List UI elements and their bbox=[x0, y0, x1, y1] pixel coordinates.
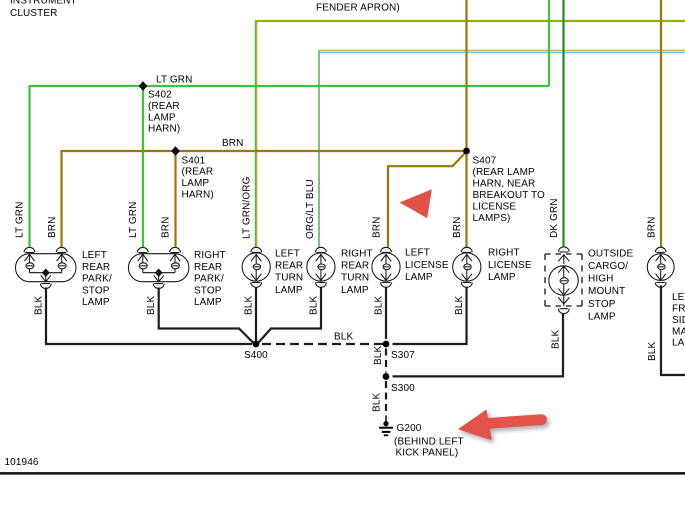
svg-text:RIGHT: RIGHT bbox=[194, 250, 226, 261]
svg-text:REAR: REAR bbox=[82, 262, 110, 273]
svg-text:LT GRN/ORG: LT GRN/ORG bbox=[242, 176, 253, 239]
svg-text:REAR: REAR bbox=[341, 261, 369, 272]
svg-text:LICENSE: LICENSE bbox=[488, 260, 532, 271]
svg-text:BLK: BLK bbox=[334, 332, 353, 343]
svg-text:LAMP: LAMP bbox=[148, 112, 176, 123]
svg-text:RIGHT: RIGHT bbox=[341, 249, 373, 260]
svg-text:LAMP: LAMP bbox=[182, 178, 210, 189]
svg-text:LAMP: LAMP bbox=[672, 338, 685, 349]
svg-text:BLK: BLK bbox=[34, 296, 45, 315]
svg-text:SIDE: SIDE bbox=[672, 315, 685, 326]
svg-text:S300: S300 bbox=[391, 383, 415, 394]
svg-text:PARK/: PARK/ bbox=[194, 274, 224, 285]
svg-text:HARN, NEAR: HARN, NEAR bbox=[473, 178, 536, 189]
svg-text:BLK: BLK bbox=[647, 342, 658, 361]
svg-text:LAMP: LAMP bbox=[82, 297, 110, 308]
svg-text:OUTSIDE: OUTSIDE bbox=[588, 248, 633, 259]
svg-text:(REAR LAMP: (REAR LAMP bbox=[473, 167, 536, 178]
svg-text:BRN: BRN bbox=[372, 217, 383, 238]
svg-text:BLK: BLK bbox=[146, 296, 157, 315]
svg-text:RIGHT: RIGHT bbox=[488, 248, 520, 259]
svg-text:LEFT: LEFT bbox=[275, 249, 300, 260]
svg-text:LICENSE: LICENSE bbox=[473, 202, 517, 213]
svg-text:LT GRN: LT GRN bbox=[156, 75, 192, 86]
svg-text:CLUSTER: CLUSTER bbox=[10, 8, 58, 19]
svg-text:LAMP: LAMP bbox=[194, 297, 222, 308]
svg-text:LAMP: LAMP bbox=[405, 272, 433, 283]
svg-text:101946: 101946 bbox=[5, 457, 39, 468]
svg-text:MARKER: MARKER bbox=[672, 326, 685, 337]
svg-text:FENDER APRON): FENDER APRON) bbox=[316, 3, 400, 14]
svg-text:HARN): HARN) bbox=[148, 124, 180, 135]
svg-text:TURN: TURN bbox=[341, 273, 369, 284]
svg-text:S307: S307 bbox=[391, 350, 415, 361]
svg-text:S402: S402 bbox=[148, 90, 172, 101]
svg-text:LT GRN: LT GRN bbox=[15, 202, 26, 238]
svg-text:(BEHIND LEFT: (BEHIND LEFT bbox=[394, 436, 464, 447]
svg-text:TURN: TURN bbox=[275, 273, 303, 284]
svg-text:BLK: BLK bbox=[551, 330, 562, 349]
svg-text:PARK/: PARK/ bbox=[82, 274, 112, 285]
svg-text:S407: S407 bbox=[473, 155, 497, 166]
svg-text:BRN: BRN bbox=[47, 217, 58, 238]
svg-text:REAR: REAR bbox=[194, 262, 222, 273]
svg-text:STOP: STOP bbox=[588, 299, 616, 310]
svg-text:MOUNT: MOUNT bbox=[588, 286, 625, 297]
svg-text:LAMP: LAMP bbox=[341, 285, 369, 296]
svg-text:LAMP: LAMP bbox=[275, 285, 303, 296]
svg-text:BRN: BRN bbox=[647, 217, 658, 238]
svg-text:BRN: BRN bbox=[222, 138, 243, 149]
svg-text:ORG/LT BLU: ORG/LT BLU bbox=[305, 179, 316, 239]
svg-text:LAMP: LAMP bbox=[588, 311, 616, 322]
svg-text:LEFT: LEFT bbox=[405, 248, 430, 259]
svg-text:BLK: BLK bbox=[373, 346, 384, 365]
svg-text:DK GRN: DK GRN bbox=[549, 198, 560, 238]
svg-text:INSTRUMENT: INSTRUMENT bbox=[10, 0, 77, 7]
svg-text:G200: G200 bbox=[397, 423, 422, 434]
svg-text:S401: S401 bbox=[182, 155, 206, 166]
svg-text:BLK: BLK bbox=[372, 393, 383, 412]
svg-text:BREAKOUT TO: BREAKOUT TO bbox=[473, 190, 546, 201]
svg-text:S400: S400 bbox=[244, 350, 268, 361]
svg-text:(REAR: (REAR bbox=[148, 101, 180, 112]
svg-text:LICENSE: LICENSE bbox=[405, 260, 449, 271]
svg-text:REAR: REAR bbox=[275, 261, 303, 272]
svg-text:BLK: BLK bbox=[454, 296, 465, 315]
svg-text:HIGH: HIGH bbox=[588, 274, 613, 285]
svg-text:STOP: STOP bbox=[194, 285, 222, 296]
svg-text:STOP: STOP bbox=[82, 285, 110, 296]
svg-text:LT GRN: LT GRN bbox=[128, 202, 139, 238]
svg-text:BRN: BRN bbox=[452, 217, 463, 238]
svg-text:BRN: BRN bbox=[161, 217, 172, 238]
svg-text:LEFT: LEFT bbox=[672, 292, 685, 303]
svg-text:LAMP: LAMP bbox=[488, 272, 516, 283]
svg-text:HARN): HARN) bbox=[182, 190, 214, 201]
svg-text:LEFT: LEFT bbox=[82, 250, 107, 261]
svg-text:(REAR: (REAR bbox=[182, 167, 214, 178]
svg-text:FRONT: FRONT bbox=[672, 304, 685, 315]
svg-text:KICK PANEL): KICK PANEL) bbox=[396, 448, 459, 459]
svg-text:CARGO/: CARGO/ bbox=[588, 261, 628, 272]
svg-text:BLK: BLK bbox=[374, 296, 385, 315]
svg-text:BLK: BLK bbox=[244, 296, 255, 315]
svg-text:LAMPS): LAMPS) bbox=[473, 213, 511, 224]
svg-text:BLK: BLK bbox=[309, 296, 320, 315]
